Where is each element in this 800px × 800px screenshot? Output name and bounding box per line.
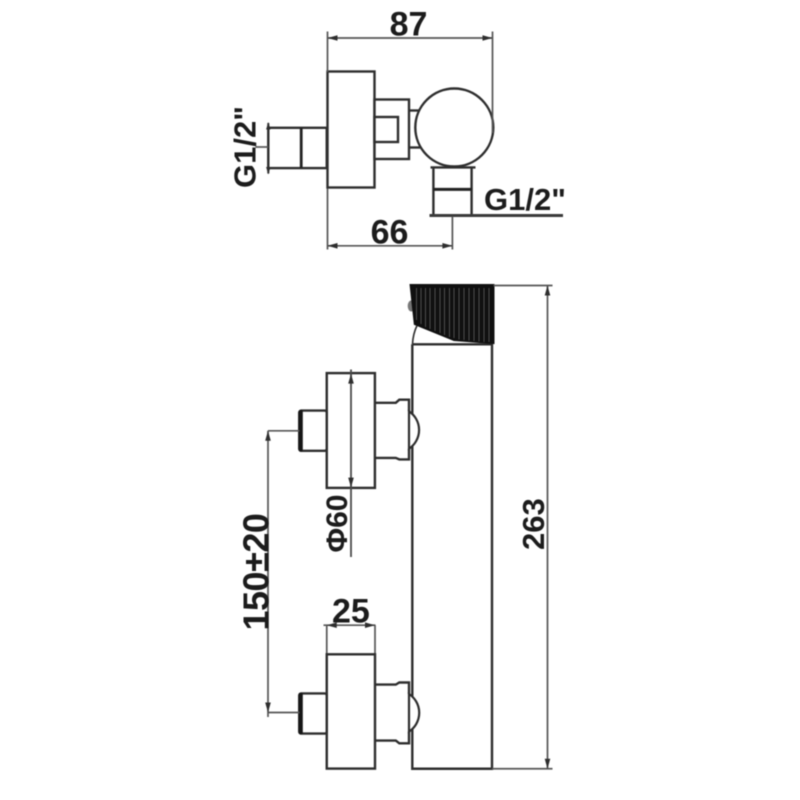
- svg-text:150±20: 150±20: [236, 514, 277, 631]
- svg-text:263: 263: [516, 498, 551, 550]
- svg-text:Φ60: Φ60: [321, 495, 354, 553]
- svg-text:G1/2": G1/2": [484, 182, 566, 217]
- svg-text:66: 66: [371, 214, 409, 252]
- svg-text:G1/2": G1/2": [228, 106, 263, 188]
- svg-text:25: 25: [332, 593, 370, 631]
- svg-text:87: 87: [390, 6, 428, 44]
